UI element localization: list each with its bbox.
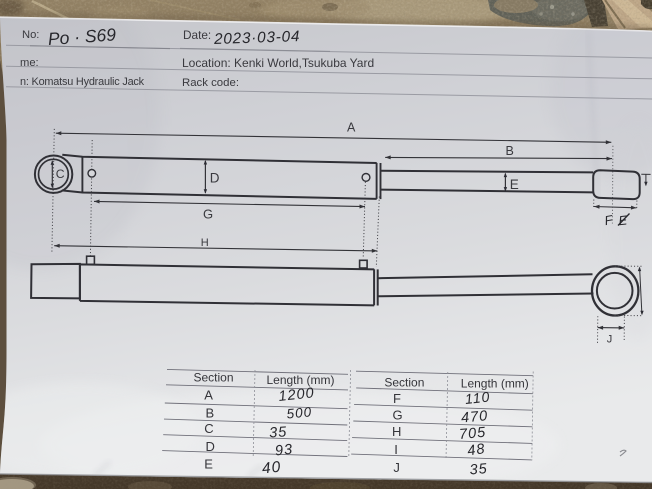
- svg-text:2023·03‑04: 2023·03‑04: [213, 28, 301, 48]
- svg-text:J: J: [607, 334, 613, 346]
- svg-text:C: C: [204, 421, 213, 436]
- svg-text:Rack code:: Rack code:: [182, 77, 239, 89]
- svg-text:I: I: [394, 442, 398, 457]
- svg-text:470: 470: [460, 408, 488, 426]
- svg-text:Section: Section: [384, 375, 424, 389]
- svg-text:J: J: [393, 460, 400, 475]
- svg-text:B: B: [506, 144, 514, 158]
- svg-text:H: H: [201, 237, 209, 249]
- svg-text:me:: me:: [20, 57, 39, 69]
- svg-text:A: A: [347, 121, 356, 135]
- svg-text:500: 500: [286, 404, 313, 421]
- svg-text:705: 705: [458, 425, 486, 443]
- svg-text:B: B: [205, 406, 214, 421]
- svg-text:E: E: [204, 456, 213, 471]
- svg-text:93: 93: [274, 442, 294, 460]
- svg-text:Date:: Date:: [183, 28, 211, 42]
- svg-text:No:: No:: [22, 29, 39, 41]
- svg-text:35: 35: [469, 461, 488, 479]
- svg-text:n: Komatsu Hydraulic Jack: n: Komatsu Hydraulic Jack: [20, 76, 145, 88]
- svg-text:F: F: [393, 391, 401, 406]
- svg-text:Location: Kenki World,Tsukuba: Location: Kenki World,Tsukuba Yard: [182, 56, 374, 70]
- svg-text:D: D: [206, 439, 215, 454]
- svg-text:40: 40: [261, 459, 282, 478]
- svg-text:G: G: [203, 207, 213, 222]
- svg-text:A: A: [204, 388, 213, 403]
- svg-text:110: 110: [464, 388, 491, 407]
- svg-text:Length (mm): Length (mm): [266, 373, 334, 387]
- svg-text:Length (mm): Length (mm): [461, 377, 529, 391]
- svg-text:48: 48: [466, 441, 486, 459]
- svg-text:Section: Section: [193, 370, 233, 384]
- svg-text:D: D: [210, 171, 220, 186]
- svg-text:G: G: [393, 408, 403, 423]
- svg-text:C: C: [56, 167, 65, 181]
- svg-text:H: H: [392, 424, 401, 439]
- svg-text:35: 35: [269, 424, 288, 441]
- svg-text:E: E: [510, 177, 519, 192]
